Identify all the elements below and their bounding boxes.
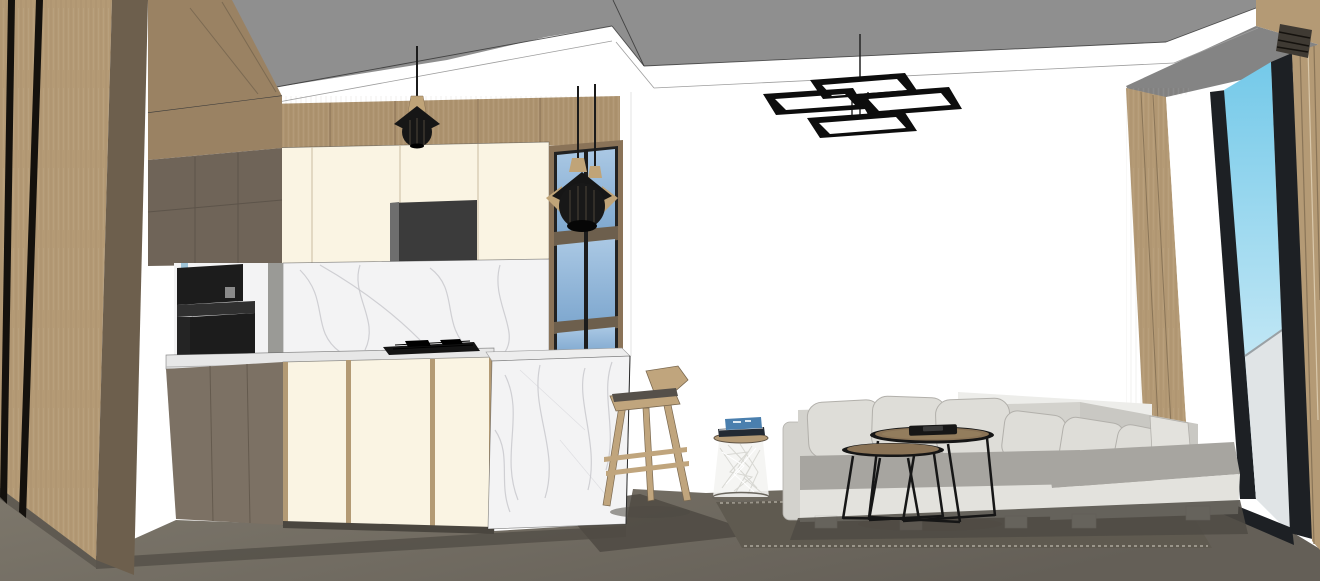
base-cabinets (283, 357, 494, 531)
left-wood-wall (0, 0, 148, 575)
gray-return-strip (268, 263, 283, 358)
pendant-cap-a (569, 158, 587, 172)
coffee-machine-lower (190, 313, 255, 357)
book-top (725, 417, 762, 430)
machine-display (225, 287, 235, 298)
pendant-bottom-rim (410, 144, 424, 149)
tray-item (923, 426, 943, 432)
interior-render-viewport (0, 0, 1320, 581)
table-top-small (847, 444, 939, 455)
coffee-machine-side (177, 317, 190, 359)
stool-shadow (610, 506, 690, 518)
coffee-machine-upper (177, 264, 243, 305)
wire-side-table (713, 417, 769, 502)
pendant-cap-b (588, 166, 602, 178)
wood-wall-grain (0, 0, 112, 560)
tall-corner-cabinets (148, 148, 282, 266)
niche-inner-edge (390, 202, 399, 264)
pendant-bowl (567, 220, 597, 232)
taupe-base-cabinets (166, 362, 283, 525)
band-grain (265, 96, 620, 152)
render-canvas (0, 0, 1320, 581)
range-hood-niche (390, 200, 477, 264)
book-spine-text-1 (733, 421, 741, 423)
book-spine-text-2 (745, 420, 751, 422)
glass-display-cabinet (549, 140, 623, 360)
